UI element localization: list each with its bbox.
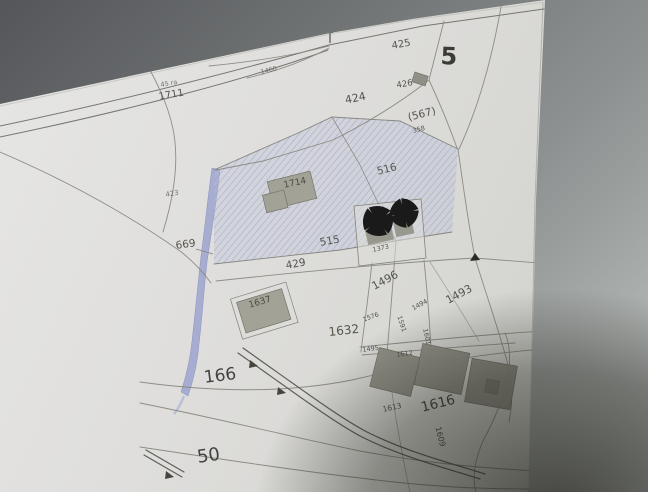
road-label-166: 166 [203, 366, 237, 387]
map-content: Catasto 1711 45 ra 425 5 424 426 (567) 3… [0, 0, 648, 492]
photo-of-cadastral-map: Catasto 1711 45 ra 425 5 424 426 (567) 3… [0, 0, 648, 492]
building-1616-shape [414, 343, 470, 394]
parcel-label-669: 669 [175, 238, 196, 251]
building-1609-shape [465, 358, 518, 409]
road-label-50: 50 [196, 446, 221, 467]
building-426-shape [412, 72, 428, 86]
building-1637-shape [230, 282, 298, 339]
boundary-triangle-icon [470, 253, 480, 261]
map-paper-sheet: Catasto 1711 45 ra 425 5 424 426 (567) 3… [0, 0, 648, 492]
parcel-label-1632: 1632 [328, 323, 360, 338]
survey-marker-icon [327, 27, 333, 43]
sheet-number: 5 [440, 44, 458, 69]
catasto-title: Catasto [262, 10, 324, 36]
